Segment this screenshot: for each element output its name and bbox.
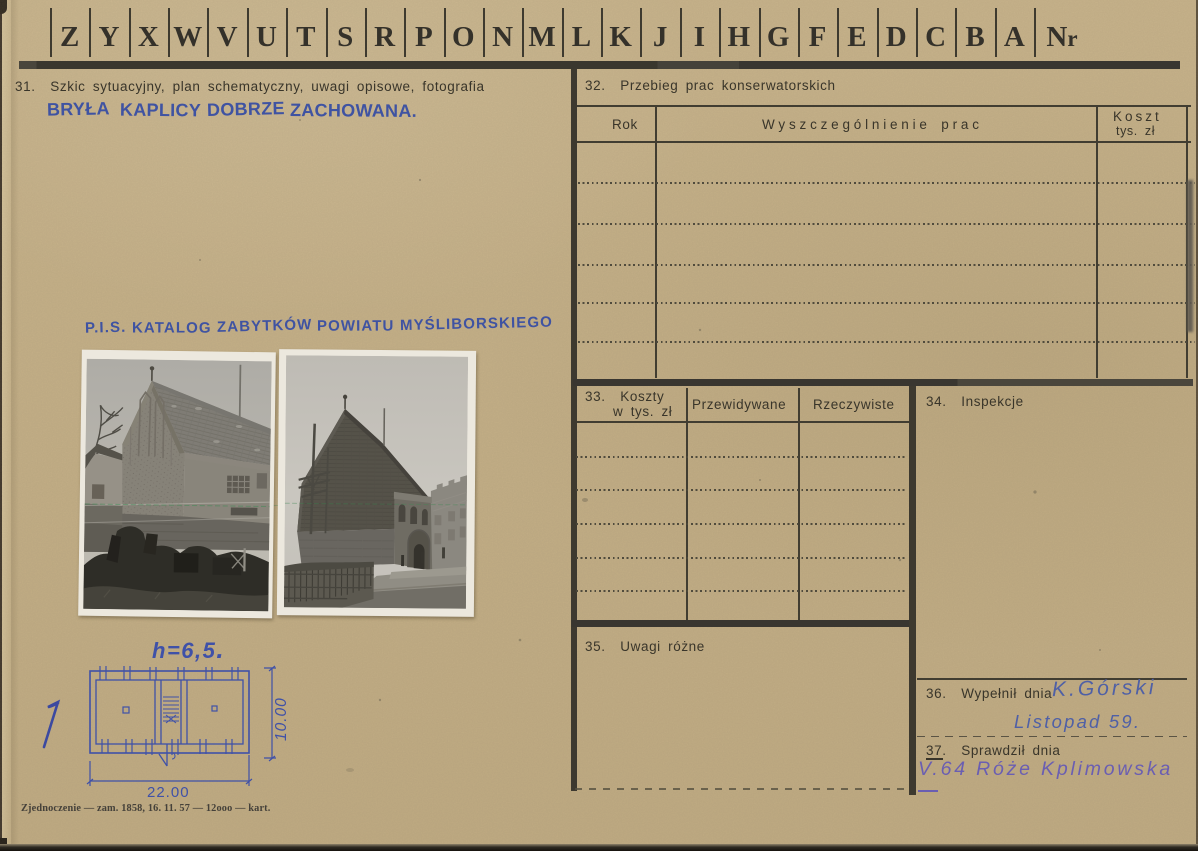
svg-text:10.00: 10.00 [273, 697, 290, 741]
svg-text:22.00: 22.00 [147, 784, 190, 801]
